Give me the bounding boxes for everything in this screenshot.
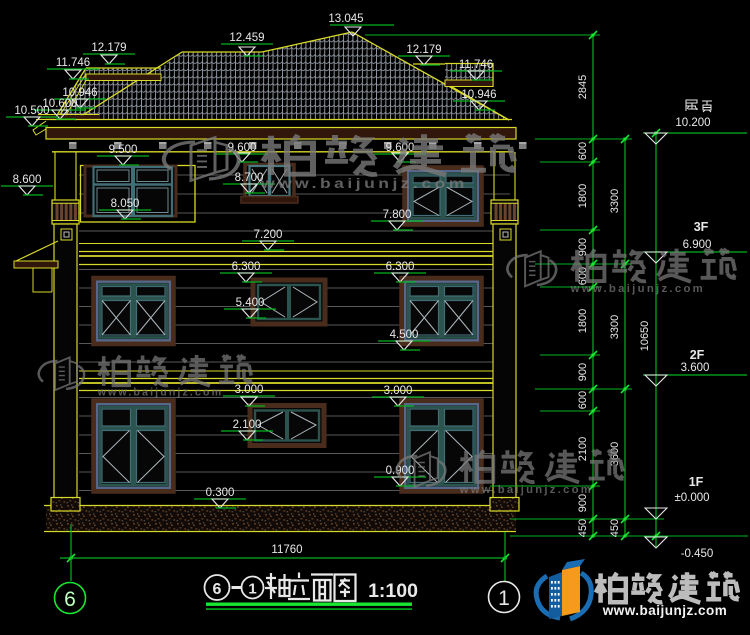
svg-text:1: 1 (498, 587, 510, 610)
svg-text:4.500: 4.500 (390, 329, 419, 341)
svg-text:3300: 3300 (609, 315, 621, 339)
svg-text:1800: 1800 (577, 309, 589, 333)
svg-text:10.500: 10.500 (14, 105, 49, 117)
svg-text:900: 900 (577, 494, 589, 512)
svg-text:1F: 1F (689, 475, 704, 489)
svg-text:3.000: 3.000 (235, 384, 264, 396)
svg-text:3F: 3F (694, 220, 709, 234)
svg-text:3300: 3300 (609, 189, 621, 213)
svg-text:12.179: 12.179 (406, 44, 441, 56)
svg-text:6: 6 (64, 588, 76, 611)
svg-text:450: 450 (609, 519, 621, 537)
svg-text:8.600: 8.600 (13, 174, 42, 186)
svg-text:12.459: 12.459 (229, 32, 264, 44)
svg-text:600: 600 (577, 142, 589, 160)
svg-text:900: 900 (577, 363, 589, 381)
svg-text:13.045: 13.045 (328, 13, 363, 25)
svg-text:9.600: 9.600 (386, 142, 415, 154)
svg-text:1800: 1800 (577, 184, 589, 208)
svg-text:10.946: 10.946 (461, 89, 496, 101)
svg-text:3.600: 3.600 (681, 362, 710, 374)
svg-text:-0.450: -0.450 (681, 548, 714, 560)
svg-text:7.200: 7.200 (254, 229, 283, 241)
svg-text:9.600: 9.600 (228, 142, 257, 154)
svg-text:www.baijunjz.com: www.baijunjz.com (602, 603, 728, 618)
svg-text:6.300: 6.300 (386, 261, 415, 273)
svg-text:5.400: 5.400 (236, 297, 265, 309)
svg-text:1:100: 1:100 (368, 580, 418, 602)
svg-text:8.700: 8.700 (235, 172, 264, 184)
svg-text:0.300: 0.300 (206, 487, 235, 499)
svg-text:6.300: 6.300 (232, 261, 261, 273)
svg-text:7.800: 7.800 (383, 209, 412, 221)
svg-text:9.500: 9.500 (109, 144, 138, 156)
svg-text:2.100: 2.100 (233, 419, 262, 431)
svg-text:11.746: 11.746 (459, 59, 493, 71)
svg-text:6: 6 (213, 581, 222, 598)
svg-text:600: 600 (577, 391, 589, 409)
svg-text:8.050: 8.050 (111, 198, 140, 210)
svg-text:450: 450 (577, 519, 589, 537)
svg-text:11.746: 11.746 (56, 57, 90, 69)
svg-text:11760: 11760 (271, 544, 302, 556)
svg-text:1: 1 (248, 581, 256, 598)
svg-text:12.179: 12.179 (91, 42, 126, 54)
svg-text:2F: 2F (690, 348, 705, 362)
svg-text:2100: 2100 (577, 437, 589, 461)
svg-text:3.000: 3.000 (384, 385, 413, 397)
svg-text:10650: 10650 (639, 321, 651, 352)
svg-text:2845: 2845 (577, 75, 589, 99)
svg-text:10.200: 10.200 (675, 117, 710, 129)
svg-text:±0.000: ±0.000 (674, 492, 709, 504)
